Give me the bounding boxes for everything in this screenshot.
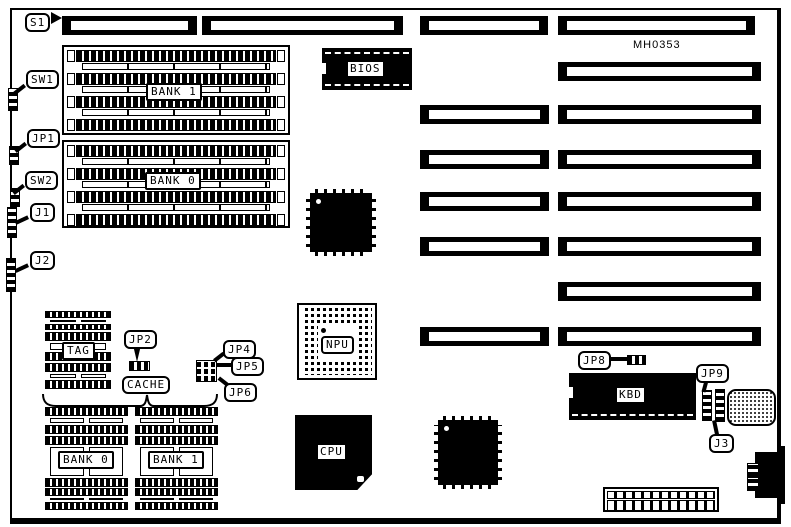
callout-tail — [611, 357, 627, 361]
callout-j3: J3 — [709, 434, 734, 453]
chip-pins — [135, 488, 218, 496]
chip-window — [89, 498, 123, 500]
callout-sw1: SW1 — [26, 70, 59, 89]
bank1-bottom-label: BANK 1 — [148, 451, 204, 469]
cache-chip — [45, 407, 128, 434]
chip-pins — [45, 380, 111, 389]
callout-tail — [216, 363, 232, 367]
chip-pins — [45, 324, 111, 331]
expansion-slot — [420, 327, 549, 346]
qfp-pins-top — [443, 416, 493, 420]
simm-socket — [76, 214, 276, 226]
slot-keyway — [429, 197, 540, 206]
chipset-qfp — [310, 193, 372, 252]
expansion-slot — [558, 105, 761, 124]
callout-sw2: SW2 — [25, 171, 58, 190]
expansion-slot-s1 — [62, 16, 197, 35]
chip-window — [179, 418, 213, 423]
cache-chip — [135, 488, 218, 510]
slot-keyway — [429, 110, 540, 119]
connector-pin-row — [607, 491, 715, 499]
pin1-dot — [357, 476, 364, 482]
qfp-pins-bottom — [443, 485, 493, 489]
npu-label: NPU — [321, 336, 354, 354]
slot-keyway — [567, 155, 752, 164]
chip-pin-row — [325, 52, 409, 54]
chip-window — [89, 418, 123, 423]
simm-socket — [76, 191, 276, 203]
pin1-dot — [316, 199, 321, 204]
bank0-top-label: BANK 0 — [145, 172, 201, 190]
chip-pin-row — [572, 414, 693, 416]
chip-window — [179, 498, 213, 500]
connector-pin-row — [607, 500, 715, 511]
qfp-pins-bottom — [315, 252, 367, 256]
chip-window — [50, 498, 84, 500]
jp4-jp5-jp6-block — [196, 360, 217, 382]
tag-chip — [45, 363, 111, 389]
jp8-jumper — [627, 355, 646, 365]
callout-jp9: JP9 — [696, 364, 729, 383]
expansion-slot — [558, 16, 755, 35]
expansion-slot — [420, 105, 549, 124]
chip-body — [135, 416, 218, 425]
socket-gap — [82, 158, 270, 165]
pin1-dot — [321, 328, 326, 333]
chip-pins — [45, 363, 111, 372]
chip-pins — [45, 478, 128, 487]
slot-keyway — [567, 197, 752, 206]
slot-keyway — [429, 242, 540, 251]
callout-s1: S1 — [25, 13, 50, 32]
qfp-pins-left — [306, 198, 310, 247]
slot-keyway — [429, 155, 540, 164]
callout-jp5: JP5 — [231, 357, 264, 376]
cache-chip — [135, 407, 218, 434]
expansion-slot — [420, 237, 549, 256]
chipset-qfp — [438, 420, 498, 485]
din-connector — [727, 389, 776, 426]
callout-j1: J1 — [30, 203, 55, 222]
chip-window — [140, 498, 174, 500]
expansion-slot — [558, 192, 761, 211]
cache-bank-brace — [41, 392, 219, 408]
chip-pins — [135, 425, 218, 434]
slot-keyway — [567, 21, 746, 30]
chip-window — [50, 374, 76, 378]
chip-pins — [135, 502, 218, 510]
socket-gap — [82, 204, 270, 211]
chip-pins — [45, 332, 111, 341]
pin1-dot — [444, 426, 449, 431]
j3-header — [715, 389, 725, 422]
slot-keyway — [567, 332, 752, 341]
edge-port-step — [777, 446, 785, 504]
chip-pins — [135, 478, 218, 487]
expansion-slot — [558, 237, 761, 256]
socket-gap — [82, 109, 270, 116]
chip-window — [50, 320, 76, 322]
slot-keyway — [429, 332, 540, 341]
slot-keyway — [567, 287, 752, 296]
chip-notch — [322, 63, 326, 74]
part-number: MH0353 — [633, 39, 681, 51]
slot-keyway — [567, 242, 752, 251]
expansion-slot — [558, 327, 761, 346]
qfp-pins-left — [434, 425, 438, 480]
expansion-slot — [558, 282, 761, 301]
bios-label: BIOS — [348, 62, 383, 76]
expansion-slot — [420, 150, 549, 169]
bank1-top-label: BANK 1 — [146, 83, 202, 101]
callout-j2: J2 — [30, 251, 55, 270]
simm-socket — [76, 145, 276, 157]
chip-pins — [45, 436, 128, 445]
chip-pins — [135, 407, 218, 416]
jp9-header — [702, 390, 712, 421]
tag-label: TAG — [62, 342, 95, 360]
chip-window — [140, 418, 174, 423]
socket-gap — [82, 63, 270, 70]
chip-window — [81, 320, 107, 322]
motherboard-diagram: MH0353 S1 SW1 JP1 SW2 J1 J2 BANK 1 — [0, 0, 791, 527]
expansion-slot — [420, 192, 549, 211]
slot-keyway — [211, 21, 394, 30]
chip-body — [45, 416, 128, 425]
qfp-pins-top — [315, 189, 367, 193]
kbd-label: KBD — [617, 388, 644, 402]
power-connector — [603, 487, 719, 512]
chip-pins — [135, 436, 218, 445]
callout-jp8: JP8 — [578, 351, 611, 370]
callout-jp2: JP2 — [124, 330, 157, 349]
edge-pin-header — [747, 477, 759, 491]
chip-pins — [45, 407, 128, 416]
expansion-slot — [202, 16, 403, 35]
chip-body — [45, 372, 111, 380]
tag-chip — [45, 311, 111, 330]
edge-pin-header — [747, 463, 759, 477]
slot-keyway — [567, 67, 752, 76]
slot-keyway — [429, 21, 539, 30]
bank0-bottom-label: BANK 0 — [58, 451, 114, 469]
cache-label: CACHE — [122, 376, 170, 394]
qfp-pins-right — [372, 198, 376, 247]
slot-keyway — [567, 110, 752, 119]
callout-jp6: JP6 — [224, 383, 257, 402]
jp2-jumper — [129, 361, 150, 371]
chip-pin-row — [325, 84, 409, 86]
expansion-slot — [558, 62, 761, 81]
expansion-slot — [420, 16, 548, 35]
callout-tail — [51, 12, 62, 24]
cpu-label: CPU — [317, 444, 346, 460]
chip-window — [50, 418, 84, 423]
chip-notch — [569, 387, 573, 398]
chip-pins — [45, 488, 128, 496]
cache-chip — [45, 488, 128, 510]
j2-header — [6, 258, 16, 292]
simm-socket — [76, 50, 276, 62]
chip-pins — [45, 502, 128, 510]
chip-window — [81, 374, 107, 378]
qfp-pins-right — [498, 425, 502, 480]
simm-socket — [76, 119, 276, 131]
chip-pins — [45, 425, 128, 434]
expansion-slot — [558, 150, 761, 169]
slot-keyway — [71, 21, 188, 30]
callout-jp1: JP1 — [27, 129, 60, 148]
